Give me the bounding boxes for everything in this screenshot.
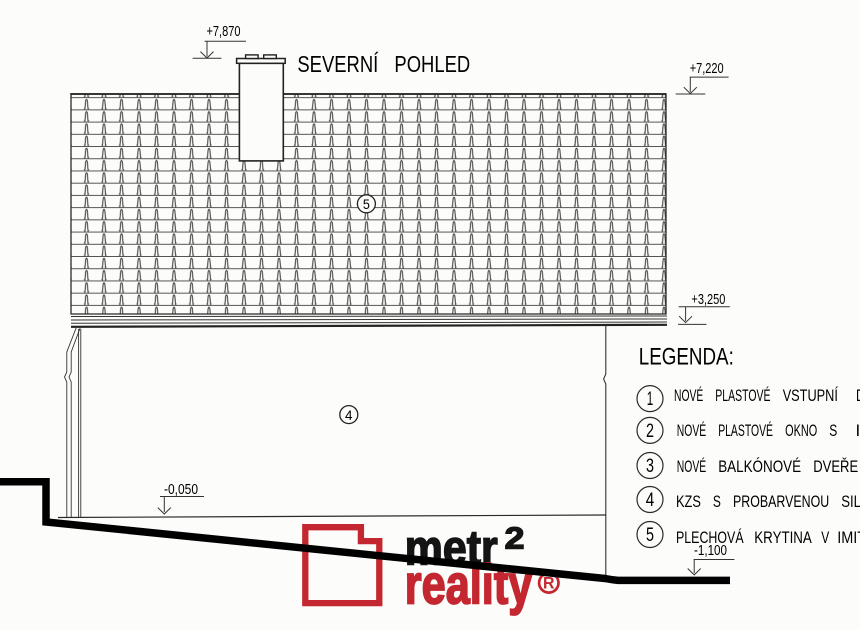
svg-text:1: 1 <box>647 389 654 410</box>
svg-text:SEVERNÍ POHLED: SEVERNÍ POHLED <box>297 51 470 77</box>
svg-text:V: V <box>821 528 829 547</box>
svg-text:+7,870: +7,870 <box>207 24 241 40</box>
svg-text:NOVÉ: NOVÉ <box>677 421 706 440</box>
svg-text:NOVÉ: NOVÉ <box>674 386 703 405</box>
svg-text:PLASTOVÉ: PLASTOVÉ <box>715 386 770 405</box>
svg-text:S: S <box>713 492 721 511</box>
svg-text:5: 5 <box>646 525 654 546</box>
svg-text:DVEŘE: DVEŘE <box>813 457 858 476</box>
svg-text:VSTUPNÍ: VSTUPNÍ <box>783 386 838 405</box>
svg-text:PLASTOVÉ: PLASTOVÉ <box>718 421 773 440</box>
svg-text:3: 3 <box>646 456 654 477</box>
svg-text:KRYTINA: KRYTINA <box>754 528 812 547</box>
svg-text:4: 4 <box>345 407 353 423</box>
svg-text:PLECHOVÁ: PLECHOVÁ <box>676 528 744 547</box>
svg-text:LEGENDA:: LEGENDA: <box>639 344 734 371</box>
svg-text:SILIKON: SILIKON <box>841 492 860 511</box>
svg-text:IMITACI: IMITACI <box>837 528 860 547</box>
svg-text:2: 2 <box>505 522 525 556</box>
svg-text:BALKÓNOVÉ: BALKÓNOVÉ <box>718 457 801 476</box>
svg-text:NOVÉ: NOVÉ <box>677 457 706 476</box>
svg-text:5: 5 <box>363 196 370 212</box>
svg-text:+7,220: +7,220 <box>690 61 724 77</box>
svg-text:OKNO: OKNO <box>785 421 817 440</box>
svg-text:DVEŘE: DVEŘE <box>856 386 860 405</box>
svg-text:4: 4 <box>646 490 655 511</box>
svg-text:-0,050: -0,050 <box>164 482 198 498</box>
svg-text:KZS: KZS <box>676 492 701 511</box>
svg-text:2: 2 <box>646 421 654 442</box>
svg-text:IZ: IZ <box>856 421 860 440</box>
svg-text:S: S <box>829 421 837 440</box>
svg-text:PROBARVENOU: PROBARVENOU <box>733 492 829 511</box>
svg-text:+3,250: +3,250 <box>691 292 725 308</box>
